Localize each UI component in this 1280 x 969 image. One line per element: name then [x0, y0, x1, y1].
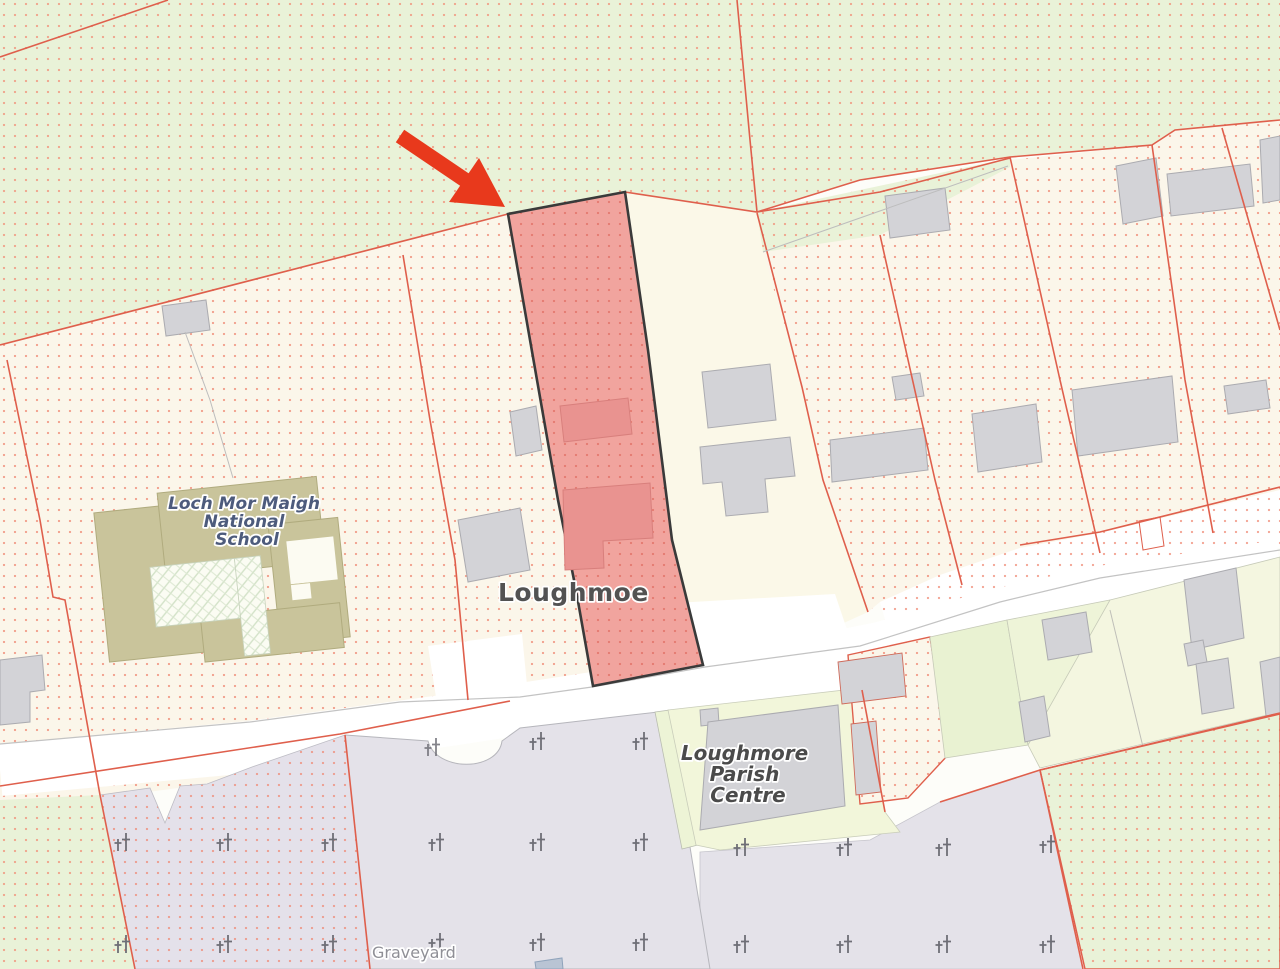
building — [510, 406, 542, 456]
cadastral-map[interactable]: Loch Mor Maigh National School Loughmoe … — [0, 0, 1280, 969]
building — [1042, 612, 1092, 660]
graveyard-label: Graveyard — [372, 943, 456, 962]
driveway — [428, 634, 530, 723]
graveyard-main — [345, 712, 710, 969]
building — [162, 300, 210, 336]
school-courtyard-hatched — [150, 558, 241, 627]
building — [885, 188, 950, 238]
building — [1072, 376, 1178, 456]
building — [1224, 380, 1270, 414]
building — [1019, 696, 1050, 742]
settlement-label: Loughmoe — [498, 578, 649, 607]
building — [972, 404, 1042, 472]
building — [458, 508, 530, 582]
school-courtyard-plain — [286, 536, 338, 585]
building — [1184, 568, 1244, 650]
building — [1196, 658, 1234, 714]
building — [702, 364, 776, 428]
building — [892, 373, 924, 400]
building — [1260, 136, 1280, 203]
